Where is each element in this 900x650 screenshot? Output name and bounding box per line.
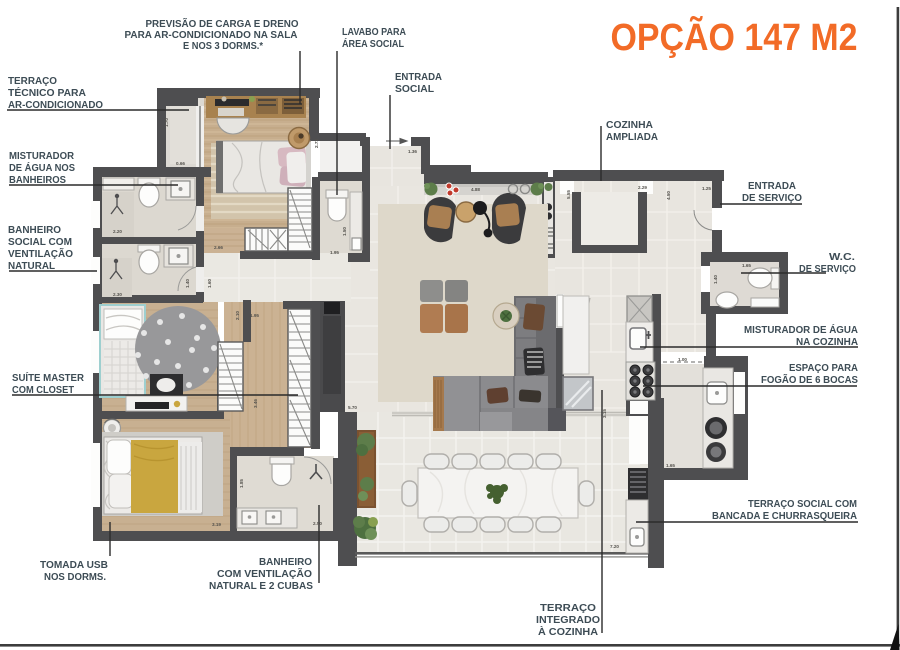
svg-text:AMPLIADA: AMPLIADA (606, 132, 658, 143)
svg-text:5.70: 5.70 (348, 405, 357, 410)
svg-text:COM VENTILAÇÃO: COM VENTILAÇÃO (217, 567, 312, 580)
svg-text:SOCIAL: SOCIAL (395, 84, 434, 95)
svg-text:1.25: 1.25 (702, 186, 711, 191)
svg-text:À COZINHA: À COZINHA (538, 625, 598, 638)
svg-text:2.30: 2.30 (113, 292, 122, 297)
svg-text:NATURAL E 2 CUBAS: NATURAL E 2 CUBAS (209, 581, 313, 592)
svg-text:TERRAÇO: TERRAÇO (540, 603, 596, 614)
svg-text:5.55: 5.55 (566, 190, 571, 199)
svg-text:4.50: 4.50 (666, 191, 671, 200)
svg-text:3.19: 3.19 (212, 522, 221, 527)
svg-text:BANCADA E CHURRASQUEIRA: BANCADA E CHURRASQUEIRA (712, 511, 857, 522)
svg-text:1.00: 1.00 (678, 357, 687, 362)
svg-text:TERRAÇO: TERRAÇO (8, 76, 57, 87)
svg-text:W.C.: W.C. (829, 252, 855, 263)
svg-text:1.60: 1.60 (207, 279, 212, 288)
svg-text:SUÍTE MASTER: SUÍTE MASTER (12, 371, 85, 384)
svg-text:1.40: 1.40 (713, 275, 718, 284)
svg-text:ÁREA SOCIAL: ÁREA SOCIAL (342, 37, 404, 50)
svg-text:4.88: 4.88 (471, 187, 480, 192)
svg-text:1.65: 1.65 (742, 263, 751, 268)
svg-text:TOMADA USB: TOMADA USB (40, 560, 108, 571)
svg-text:2.73: 2.73 (314, 139, 319, 148)
svg-text:OPÇÃO 147 M2: OPÇÃO 147 M2 (611, 15, 858, 59)
svg-text:PREVISÃO DE CARGA E DRENO: PREVISÃO DE CARGA E DRENO (146, 17, 299, 30)
svg-text:3.15: 3.15 (602, 409, 607, 418)
svg-text:TERRAÇO SOCIAL COM: TERRAÇO SOCIAL COM (748, 499, 857, 510)
svg-text:7.20: 7.20 (610, 544, 619, 549)
svg-text:DE SERVIÇO: DE SERVIÇO (799, 264, 856, 275)
svg-text:COM CLOSET: COM CLOSET (12, 385, 74, 396)
svg-text:VENTILAÇÃO: VENTILAÇÃO (8, 247, 73, 260)
svg-text:DE ÁGUA NOS: DE ÁGUA NOS (9, 161, 75, 174)
svg-text:2.20: 2.20 (113, 229, 122, 234)
svg-text:AR-CONDICIONADO: AR-CONDICIONADO (8, 100, 103, 111)
svg-text:1.40: 1.40 (185, 279, 190, 288)
svg-text:COZINHA: COZINHA (606, 120, 653, 131)
svg-text:BANHEIRO: BANHEIRO (8, 225, 61, 236)
svg-text:DE SERVIÇO: DE SERVIÇO (742, 193, 802, 204)
svg-text:SOCIAL COM: SOCIAL COM (8, 237, 72, 248)
svg-text:NOS DORMS.: NOS DORMS. (44, 572, 106, 583)
svg-text:MISTURADOR: MISTURADOR (9, 151, 75, 162)
svg-text:2.29: 2.29 (638, 185, 647, 190)
svg-text:BANHEIROS: BANHEIROS (9, 175, 66, 186)
svg-text:TÉCNICO PARA: TÉCNICO PARA (8, 86, 86, 99)
svg-text:3.46: 3.46 (253, 399, 258, 408)
svg-text:NATURAL: NATURAL (8, 261, 55, 272)
svg-text:MISTURADOR DE ÁGUA: MISTURADOR DE ÁGUA (744, 323, 858, 336)
svg-text:2.50: 2.50 (313, 521, 322, 526)
svg-text:0.66: 0.66 (176, 161, 185, 166)
svg-text:LAVABO PARA: LAVABO PARA (342, 27, 406, 38)
svg-text:ENTRADA: ENTRADA (395, 72, 442, 83)
svg-text:1.70: 1.70 (164, 118, 169, 127)
svg-text:FOGÃO DE 6 BOCAS: FOGÃO DE 6 BOCAS (761, 373, 858, 386)
svg-text:PARA AR-CONDICIONADO NA SALA: PARA AR-CONDICIONADO NA SALA (125, 30, 298, 41)
svg-text:BANHEIRO: BANHEIRO (259, 557, 312, 568)
svg-text:1.65: 1.65 (666, 463, 675, 468)
svg-text:INTEGRADO: INTEGRADO (536, 615, 600, 626)
svg-text:ESPAÇO PARA: ESPAÇO PARA (789, 363, 858, 374)
svg-text:1.95: 1.95 (250, 313, 259, 318)
svg-text:NA COZINHA: NA COZINHA (796, 337, 858, 348)
svg-text:ENTRADA: ENTRADA (748, 181, 796, 192)
svg-text:1.85: 1.85 (239, 479, 244, 488)
svg-text:E NOS 3 DORMS.*: E NOS 3 DORMS.* (183, 41, 263, 52)
svg-text:1.36: 1.36 (408, 149, 417, 154)
svg-text:1.50: 1.50 (342, 227, 347, 236)
svg-text:2.10: 2.10 (235, 311, 240, 320)
svg-text:2.66: 2.66 (214, 245, 223, 250)
svg-text:1.95: 1.95 (330, 250, 339, 255)
